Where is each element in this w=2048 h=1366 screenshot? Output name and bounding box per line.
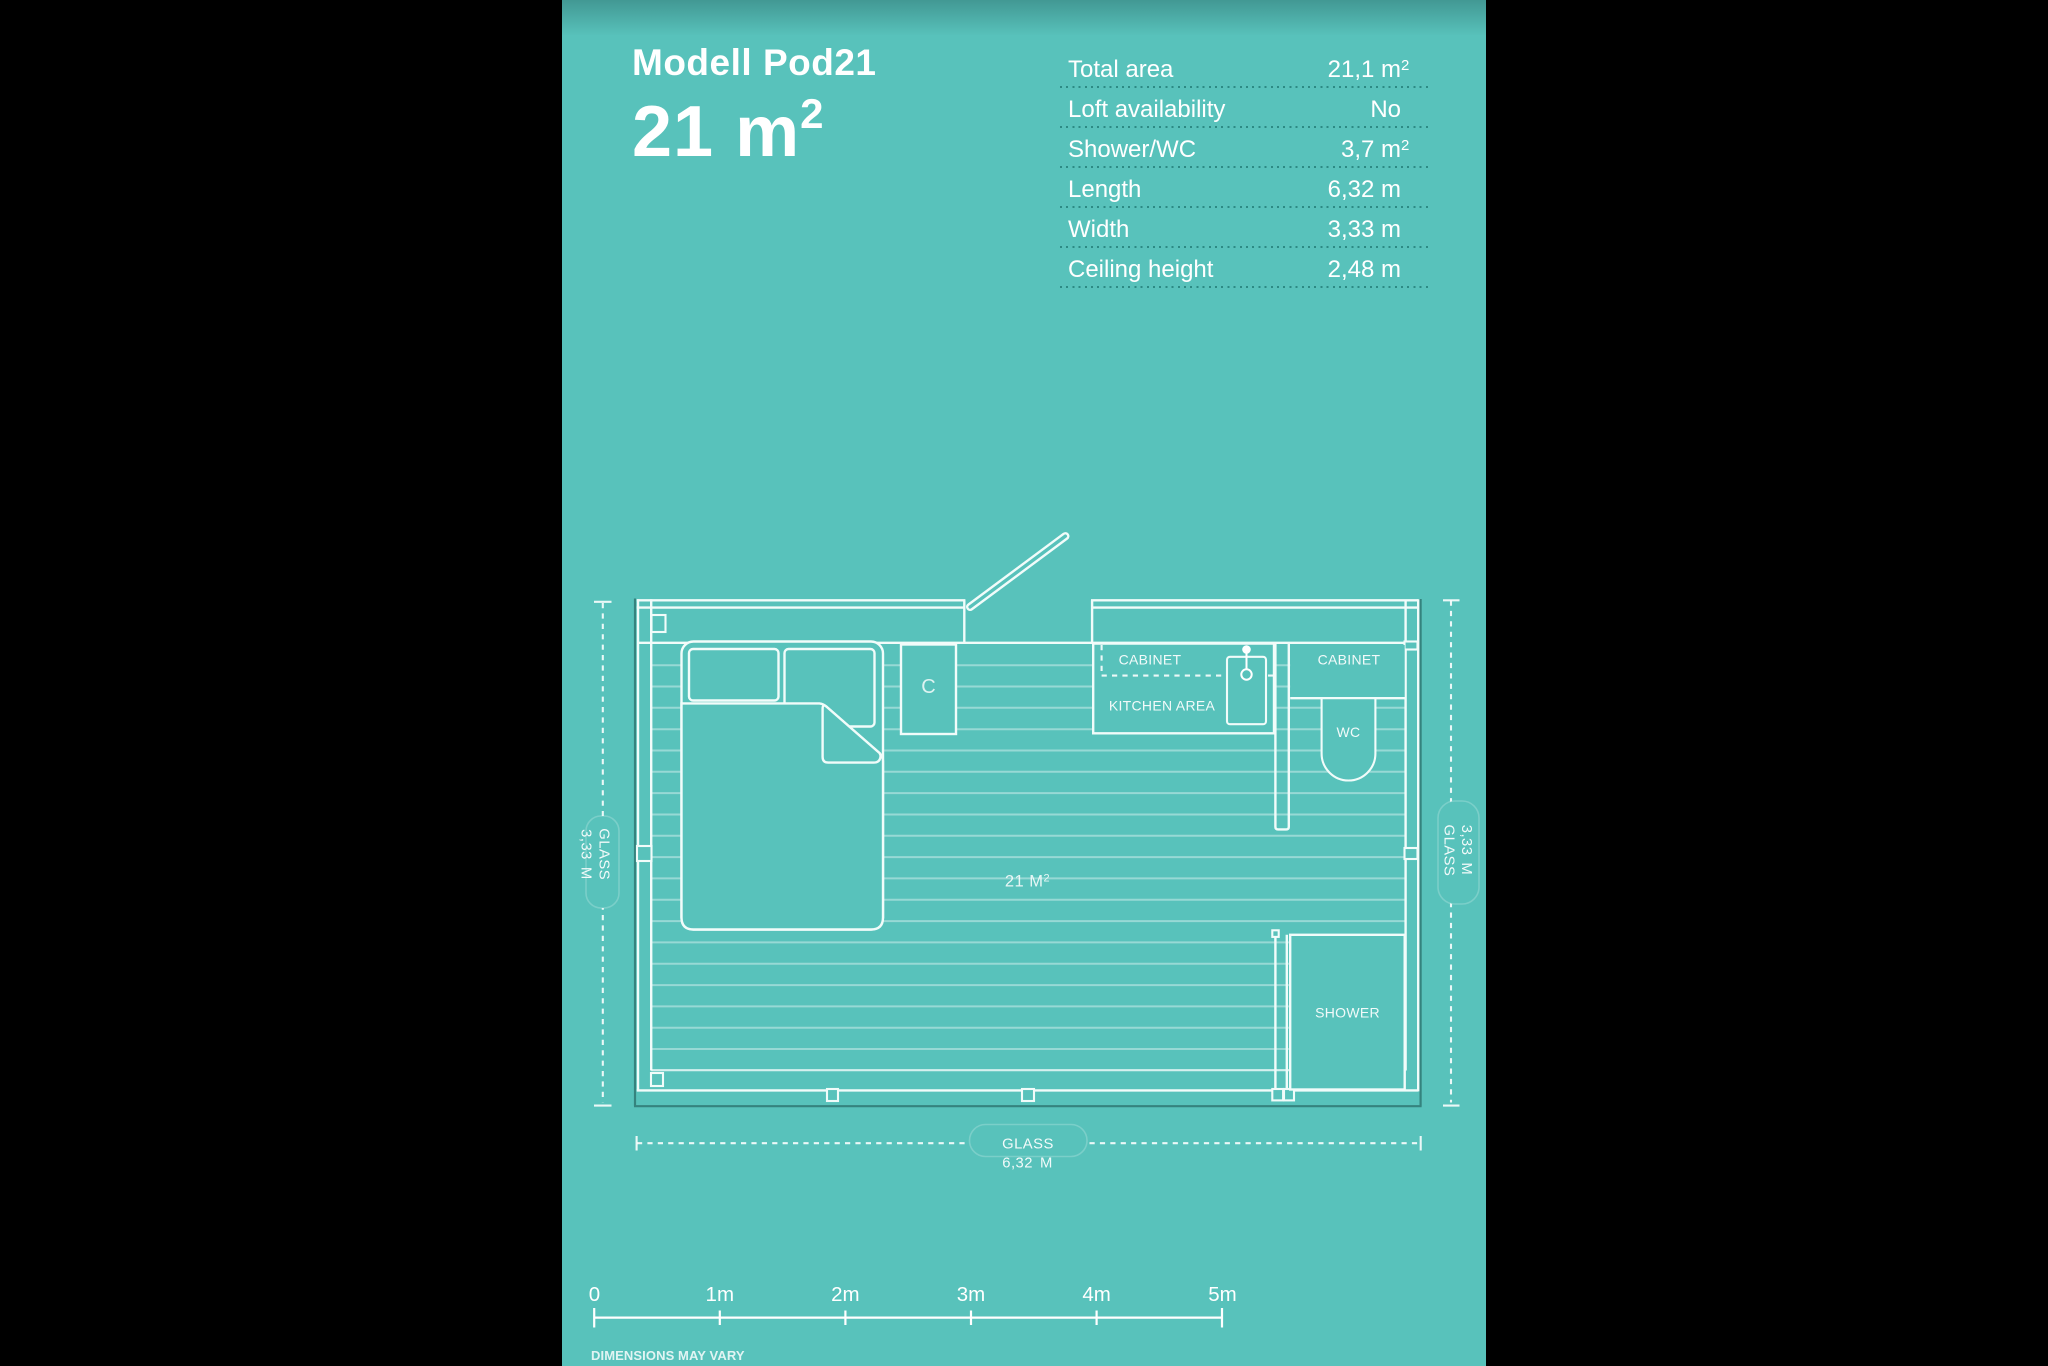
svg-text:SHOWER: SHOWER [1315, 1005, 1380, 1021]
svg-text:GLASS: GLASS [1002, 1137, 1054, 1153]
svg-text:5m: 5m [1208, 1283, 1236, 1306]
svg-text:3,33 M: 3,33 M [1458, 825, 1474, 876]
svg-text:KITCHEN AREA: KITCHEN AREA [1109, 698, 1216, 714]
svg-text:C: C [921, 676, 935, 698]
svg-text:21 M2: 21 M2 [1005, 873, 1050, 891]
svg-text:CABINET: CABINET [1318, 652, 1381, 668]
svg-text:3m: 3m [957, 1283, 985, 1306]
svg-text:0: 0 [589, 1283, 600, 1306]
svg-text:CABINET: CABINET [1119, 652, 1182, 668]
svg-text:2m: 2m [831, 1283, 859, 1306]
svg-text:3,33 M: 3,33 M [578, 829, 594, 880]
svg-text:6,32 M: 6,32 M [1002, 1156, 1053, 1172]
svg-text:1m: 1m [706, 1283, 734, 1306]
svg-text:GLASS: GLASS [596, 828, 612, 880]
svg-text:WC: WC [1337, 724, 1361, 740]
svg-text:GLASS: GLASS [1441, 825, 1457, 877]
svg-text:4m: 4m [1082, 1283, 1110, 1306]
